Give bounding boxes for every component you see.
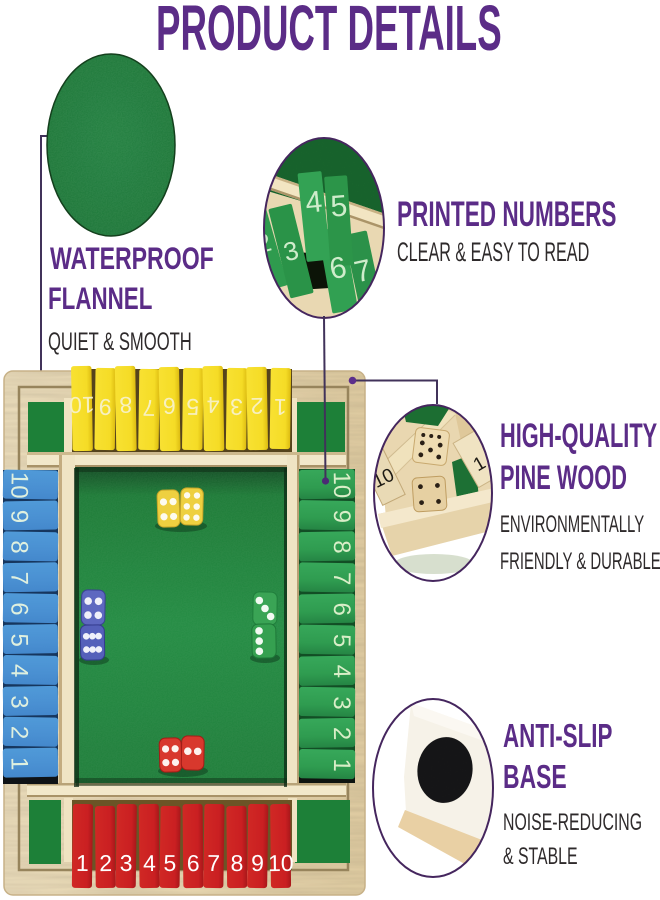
svg-text:9: 9 <box>251 850 264 876</box>
svg-text:3: 3 <box>328 696 355 710</box>
svg-text:4: 4 <box>304 185 324 220</box>
svg-text:9: 9 <box>99 394 112 420</box>
svg-text:3: 3 <box>5 695 32 709</box>
svg-text:10: 10 <box>328 471 355 498</box>
svg-text:1: 1 <box>274 394 287 420</box>
svg-text:9: 9 <box>328 509 355 523</box>
svg-text:2: 2 <box>99 850 112 876</box>
svg-text:7: 7 <box>207 850 220 876</box>
svg-text:8: 8 <box>230 850 243 876</box>
svg-text:7: 7 <box>5 571 32 585</box>
svg-text:10: 10 <box>69 392 95 418</box>
svg-text:4: 4 <box>206 392 219 418</box>
svg-text:4: 4 <box>143 850 156 876</box>
svg-text:4: 4 <box>328 664 355 678</box>
svg-text:10: 10 <box>5 472 32 499</box>
svg-text:8: 8 <box>328 540 355 554</box>
svg-text:5: 5 <box>5 633 32 647</box>
svg-text:6: 6 <box>5 602 32 616</box>
svg-text:4: 4 <box>5 664 32 678</box>
svg-text:2: 2 <box>328 727 355 741</box>
svg-text:6: 6 <box>187 850 200 876</box>
svg-text:10: 10 <box>268 850 294 876</box>
svg-text:8: 8 <box>5 540 32 554</box>
svg-text:5: 5 <box>186 394 199 420</box>
svg-text:8: 8 <box>119 392 132 418</box>
svg-text:9: 9 <box>5 510 32 524</box>
svg-text:2: 2 <box>250 393 263 419</box>
svg-text:1: 1 <box>328 758 355 772</box>
svg-text:3: 3 <box>230 394 243 420</box>
svg-text:7: 7 <box>142 395 155 421</box>
svg-text:5: 5 <box>163 850 176 876</box>
svg-text:1: 1 <box>5 757 32 771</box>
svg-text:5: 5 <box>329 189 348 223</box>
svg-text:1: 1 <box>76 850 89 876</box>
svg-text:6: 6 <box>328 602 355 616</box>
svg-text:5: 5 <box>328 634 355 648</box>
svg-text:2: 2 <box>5 726 32 740</box>
svg-text:3: 3 <box>120 850 133 876</box>
svg-text:7: 7 <box>328 572 355 586</box>
svg-text:6: 6 <box>163 393 176 419</box>
